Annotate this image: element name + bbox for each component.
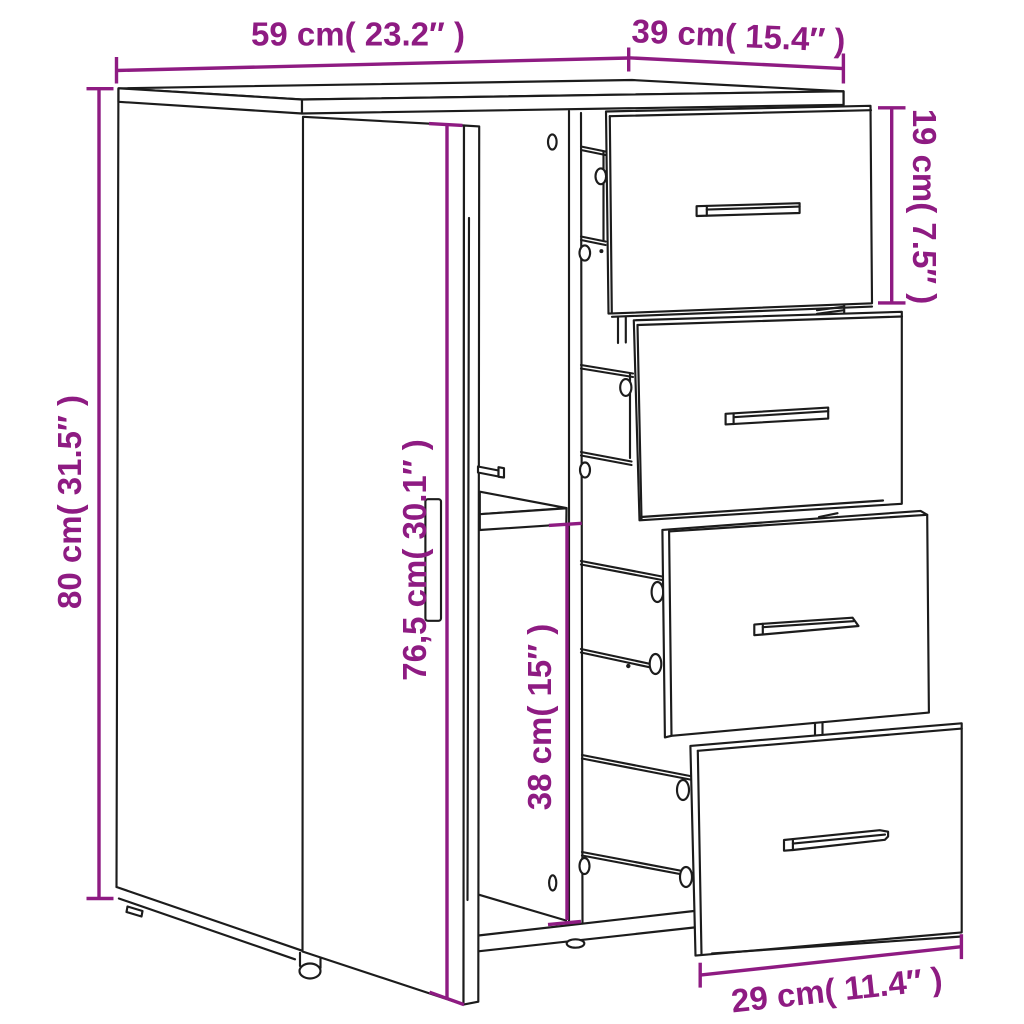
svg-text:38 cm( 15″ ): 38 cm( 15″ ) (521, 624, 558, 810)
svg-text:76,5 cm( 30.1″ ): 76,5 cm( 30.1″ ) (396, 439, 433, 680)
svg-text:19 cm( 7.5″ ): 19 cm( 7.5″ ) (906, 109, 943, 305)
svg-text:59 cm( 23.2″ ): 59 cm( 23.2″ ) (251, 16, 465, 53)
svg-text:80 cm( 31.5″ ): 80 cm( 31.5″ ) (51, 395, 88, 609)
